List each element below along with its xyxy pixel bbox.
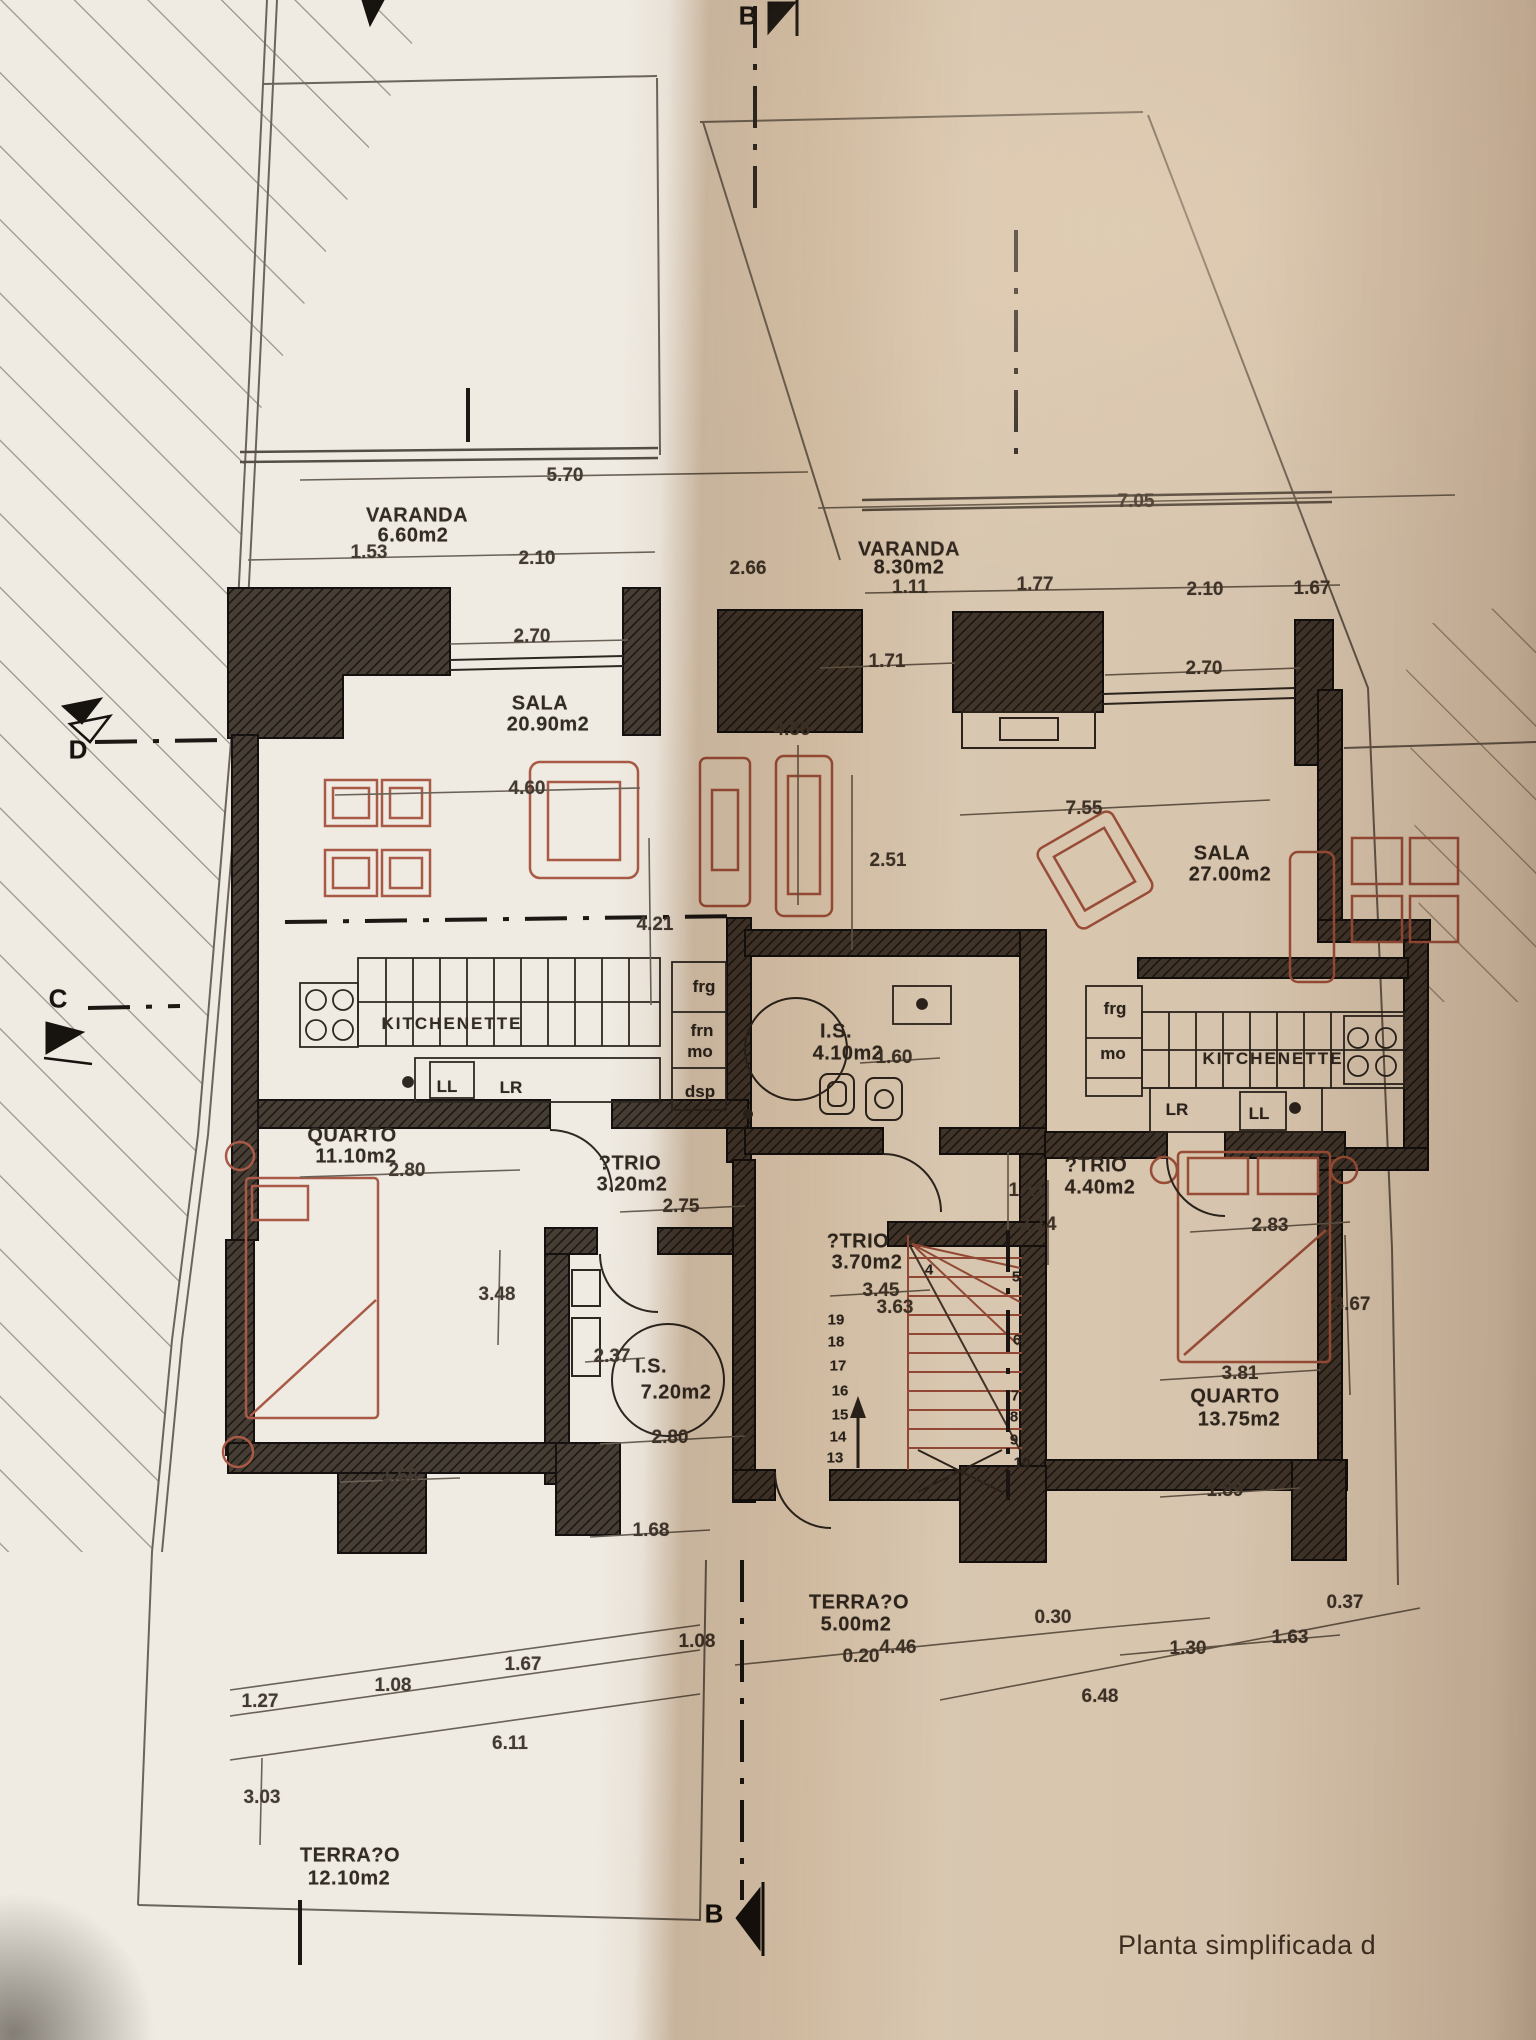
dimensions-1.71-12: 1.71 xyxy=(869,651,906,673)
section-marker-b-bottom: B xyxy=(705,1899,724,1930)
dimensions-3.48-20: 3.48 xyxy=(479,1284,516,1306)
dimensions-3.67-28: 3.67 xyxy=(1334,1294,1371,1316)
room-terraco-left: TERRA?O xyxy=(300,1845,400,1868)
dimensions-3.03-38: 3.03 xyxy=(244,1787,281,1809)
dimensions-2.10-10: 2.10 xyxy=(1187,579,1224,601)
appliances-LL-9: LL xyxy=(1249,1104,1270,1124)
dimensions-1.63-44: 1.63 xyxy=(1272,1627,1309,1649)
dimensions-2.83-27: 2.83 xyxy=(1252,1215,1289,1237)
room-quarto-right: QUARTO xyxy=(1190,1386,1279,1409)
area-is-center: 4.10m2 xyxy=(813,1043,884,1066)
area-quarto-left: 11.10m2 xyxy=(315,1146,396,1169)
room-quarto-left: QUARTO xyxy=(307,1125,396,1148)
appliances-mo-7: mo xyxy=(1100,1044,1126,1064)
dimensions-0.30-41: 0.30 xyxy=(1035,1607,1072,1629)
room-sala-left: SALA xyxy=(512,693,568,716)
stair_numbers-18-1: 18 xyxy=(828,1334,845,1351)
area-atrio-right: 4.40m2 xyxy=(1065,1177,1136,1200)
appliances-dsp-3: dsp xyxy=(685,1082,715,1102)
dimensions-2.37-25: 2.37 xyxy=(594,1346,631,1368)
dimensions-2.70-13: 2.70 xyxy=(1186,658,1223,680)
dimensions-2.51-14: 2.51 xyxy=(870,850,907,872)
section-marker-c: C xyxy=(49,984,68,1015)
dimensions-1.68-31: 1.68 xyxy=(382,1466,419,1488)
room-is-center: I.S. xyxy=(820,1021,852,1044)
stair_numbers-6-9: 6 xyxy=(1013,1332,1021,1349)
stair_numbers-8-11: 8 xyxy=(1010,1409,1018,1426)
stair_numbers-16-3: 16 xyxy=(832,1383,849,1400)
dimensions-2.66-3: 2.66 xyxy=(730,558,767,580)
dimensions-2.70-4: 2.70 xyxy=(514,626,551,648)
dimensions-2.80-26: 2.80 xyxy=(652,1427,689,1449)
stair_numbers-13-6: 13 xyxy=(827,1450,844,1467)
dimensions-2.10-2: 2.10 xyxy=(519,548,556,570)
dimensions-3.63-22: 3.63 xyxy=(877,1297,914,1319)
stair_numbers-14-5: 14 xyxy=(830,1429,847,1446)
stair_numbers-7-10: 7 xyxy=(1011,1388,1019,1405)
appliances-frg-0: frg xyxy=(693,977,716,997)
appliances-frg-6: frg xyxy=(1104,999,1127,1019)
dimensions-4.36-16: 4.36 xyxy=(774,719,811,741)
dimensions-7.05-7: 7.05 xyxy=(1118,491,1155,513)
room-sala-right: SALA xyxy=(1194,843,1250,866)
dimensions-1.08-34: 1.08 xyxy=(375,1675,412,1697)
dimensions-4.60-5: 4.60 xyxy=(509,778,546,800)
area-quarto-right: 13.75m2 xyxy=(1198,1409,1280,1432)
dimensions-0.20-39: 0.20 xyxy=(843,1646,880,1668)
room-kitchenette-left: KITCHENETTE xyxy=(382,1014,523,1034)
dimensions-6.11-37: 6.11 xyxy=(492,1733,528,1755)
appliances-frn-1: frn xyxy=(691,1021,714,1041)
area-is-left: 7.20m2 xyxy=(641,1382,712,1405)
dimensions-2.75-19: 2.75 xyxy=(663,1196,700,1218)
area-terraco-left: 12.10m2 xyxy=(308,1868,390,1891)
stair_numbers-17-2: 17 xyxy=(830,1358,847,1375)
dimensions-2.80-18: 2.80 xyxy=(389,1160,426,1182)
section-marker-d: D xyxy=(69,735,88,766)
dimensions-0.37-42: 0.37 xyxy=(1327,1592,1364,1614)
stair_numbers-9-12: 9 xyxy=(1010,1432,1018,1449)
dimensions-1.15-23: 1.15 xyxy=(1009,1180,1046,1202)
dimensions-1.68-32: 1.68 xyxy=(633,1520,670,1542)
appliances-mo-2: mo xyxy=(687,1042,713,1062)
stair_numbers-5-8: 5 xyxy=(1012,1269,1020,1286)
dimensions-1.30-43: 1.30 xyxy=(1170,1638,1207,1660)
dimensions-1.60-17: 1.60 xyxy=(876,1047,913,1069)
dimensions-6.48-45: 6.48 xyxy=(1082,1686,1119,1708)
area-atrio-center: 3.70m2 xyxy=(832,1252,903,1275)
dimensions-2.14-24: 2.14 xyxy=(1020,1214,1057,1236)
dimensions-1.53-1: 1.53 xyxy=(351,542,388,564)
area-sala-left: 20.90m2 xyxy=(507,714,589,737)
area-varanda-left: 6.60m2 xyxy=(378,525,449,548)
dimensions-4.46-40: 4.46 xyxy=(880,1637,917,1659)
room-atrio-center: ?TRIO xyxy=(827,1231,890,1254)
dimensions-5.70-0: 5.70 xyxy=(547,465,584,487)
dimensions-1.89-30: 1.89 xyxy=(1207,1480,1244,1502)
appliances-LL-4: LL xyxy=(437,1077,458,1097)
stair_numbers-15-4: 15 xyxy=(832,1407,849,1424)
appliances-LR-8: LR xyxy=(1166,1100,1189,1120)
area-atrio-left: 3.20m2 xyxy=(597,1174,668,1197)
dimensions-1.67-35: 1.67 xyxy=(505,1654,542,1676)
area-sala-right: 27.00m2 xyxy=(1189,864,1271,887)
dimensions-1.11-8: 1.11 xyxy=(892,577,928,599)
dimensions-4.21-6: 4.21 xyxy=(637,914,674,936)
label-layer: VARANDA6.60m2SALA20.90m2KITCHENETTEQUART… xyxy=(0,0,1536,2040)
stair_numbers-4-7: 4 xyxy=(925,1262,933,1279)
blueprint-photo: VARANDA6.60m2SALA20.90m2KITCHENETTEQUART… xyxy=(0,0,1536,2040)
drawing-caption: Planta simplificada d xyxy=(1118,1930,1376,1961)
area-terraco-center: 5.00m2 xyxy=(821,1614,892,1637)
room-terraco-center: TERRA?O xyxy=(809,1592,909,1615)
appliances-LR-5: LR xyxy=(500,1078,523,1098)
dimensions-3.81-29: 3.81 xyxy=(1222,1363,1259,1385)
stair_numbers-10-13: 10 xyxy=(1014,1455,1031,1472)
stair_numbers-19-0: 19 xyxy=(828,1312,845,1329)
room-atrio-left: ?TRIO xyxy=(599,1153,662,1176)
dimensions-1.77-9: 1.77 xyxy=(1017,574,1054,596)
room-kitchenette-right: KITCHENETTE xyxy=(1203,1049,1344,1069)
section-marker-b-top: B xyxy=(739,1,758,32)
dimensions-1.08-36: 1.08 xyxy=(679,1631,716,1653)
dimensions-7.55-15: 7.55 xyxy=(1066,798,1103,820)
dimensions-1.67-11: 1.67 xyxy=(1294,578,1331,600)
room-is-left: I.S. xyxy=(635,1356,667,1379)
dimensions-1.27-33: 1.27 xyxy=(242,1691,279,1713)
room-atrio-right: ?TRIO xyxy=(1065,1155,1128,1178)
